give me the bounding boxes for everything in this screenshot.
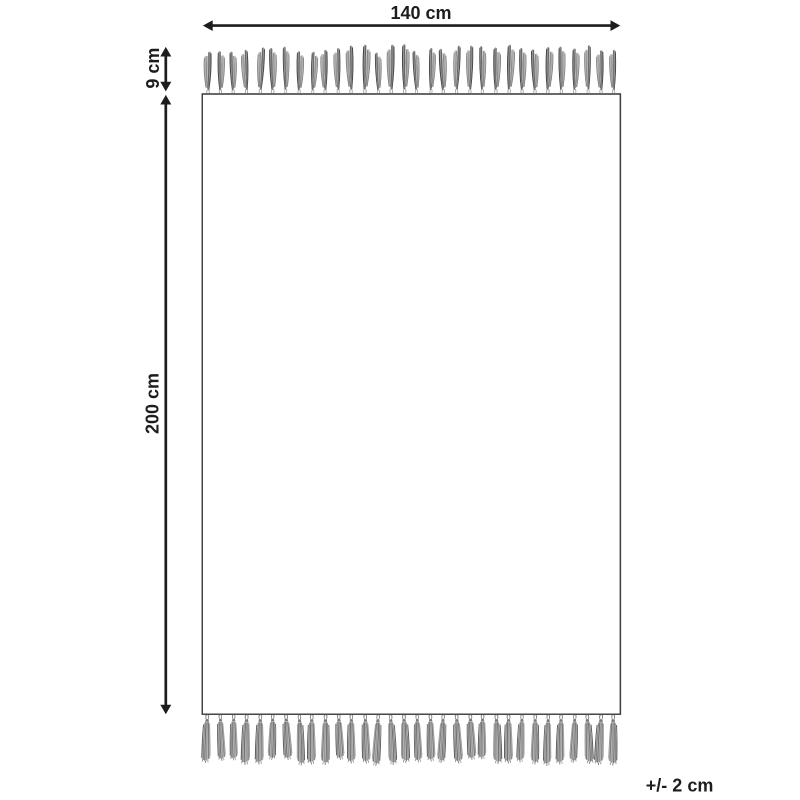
svg-text:200 cm: 200 cm — [142, 373, 162, 434]
svg-text:9 cm: 9 cm — [143, 48, 163, 89]
svg-text:+/- 2 cm: +/- 2 cm — [646, 775, 714, 795]
svg-text:140 cm: 140 cm — [390, 3, 451, 23]
